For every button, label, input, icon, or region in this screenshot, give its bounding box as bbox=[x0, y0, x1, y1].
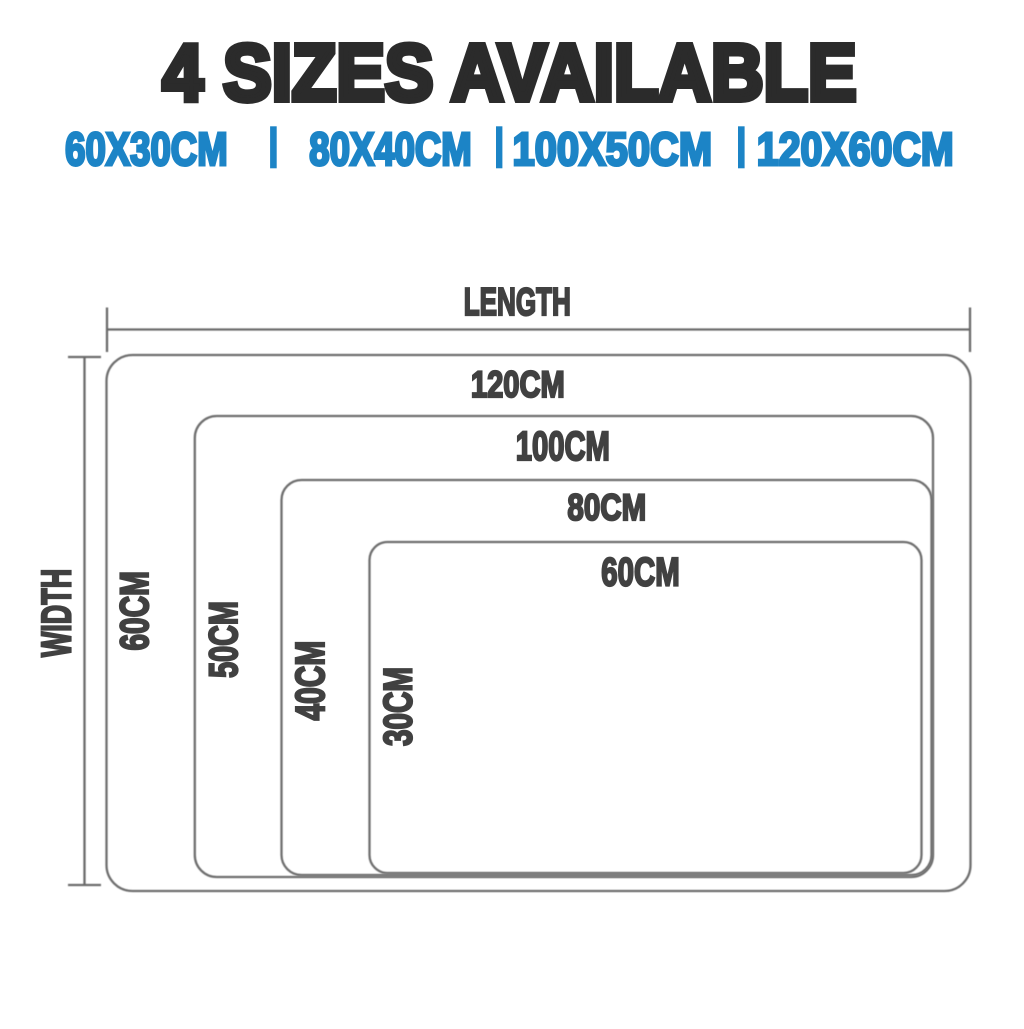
svg-text:80CM: 80CM bbox=[567, 486, 646, 528]
svg-text:40CM: 40CM bbox=[287, 641, 333, 721]
svg-text:120X60CM: 120X60CM bbox=[757, 123, 954, 175]
svg-text:120CM: 120CM bbox=[471, 363, 565, 405]
svg-text:30CM: 30CM bbox=[377, 667, 421, 746]
svg-text:60CM: 60CM bbox=[113, 571, 157, 650]
svg-text:WIDTH: WIDTH bbox=[33, 569, 80, 657]
svg-text:80X40CM: 80X40CM bbox=[309, 123, 472, 175]
svg-text:100X50CM: 100X50CM bbox=[513, 123, 713, 175]
svg-text:50CM: 50CM bbox=[202, 601, 246, 678]
svg-text:100CM: 100CM bbox=[516, 423, 610, 469]
svg-text:60CM: 60CM bbox=[601, 550, 679, 594]
svg-text:4 SIZES AVAILABLE: 4 SIZES AVAILABLE bbox=[163, 28, 857, 117]
svg-text:LENGTH: LENGTH bbox=[464, 281, 571, 324]
svg-text:60X30CM: 60X30CM bbox=[65, 123, 228, 175]
